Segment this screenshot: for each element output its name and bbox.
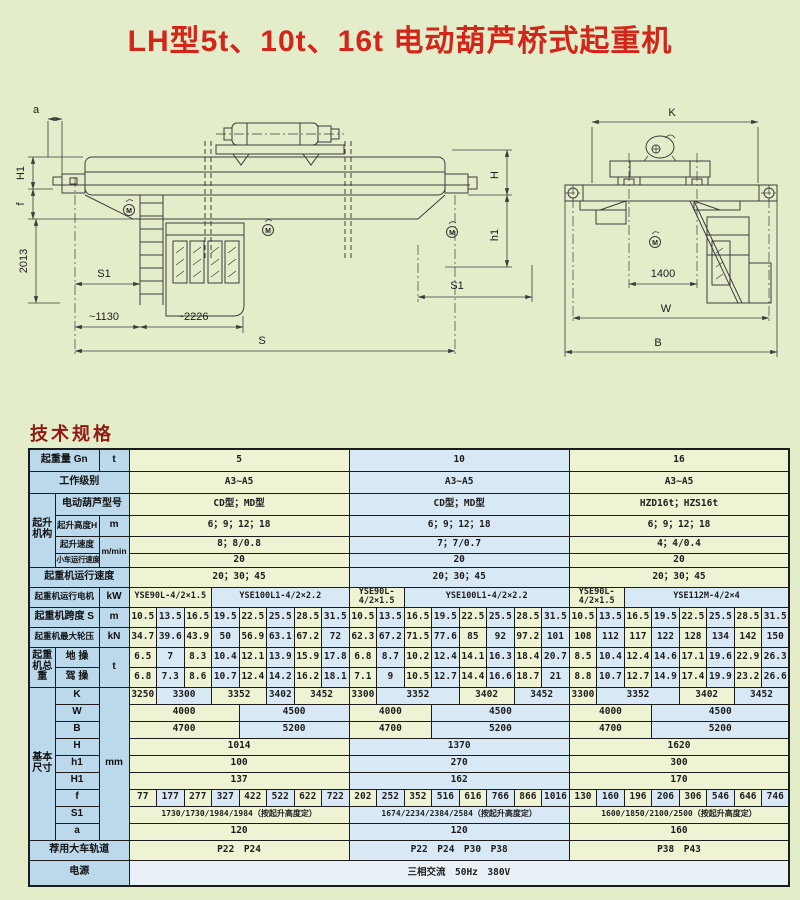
spec-value-cell: 20 bbox=[129, 553, 349, 567]
spec-value-cell: A3~A5 bbox=[129, 471, 349, 493]
spec-value-cell: 19.5 bbox=[432, 607, 460, 627]
spec-value-cell: 8.6 bbox=[184, 667, 212, 687]
page: { "page": { "title": "LH型5t、10t、16t 电动葫芦… bbox=[0, 0, 800, 900]
spec-value-cell: 6.8 bbox=[349, 647, 377, 667]
spec-value-cell: 25.5 bbox=[707, 607, 735, 627]
spec-value-cell: 142 bbox=[734, 627, 762, 647]
spec-value-cell: 12.7 bbox=[432, 667, 460, 687]
table-row: 电源三相交流 50Hz 380V bbox=[29, 860, 789, 886]
spec-value-cell: 19.6 bbox=[707, 647, 735, 667]
spec-value-cell: 23.2 bbox=[734, 667, 762, 687]
spec-value-cell: A3~A5 bbox=[349, 471, 569, 493]
spec-label-cell: 驾 操 bbox=[55, 667, 99, 687]
spec-value-cell: 4500 bbox=[432, 704, 570, 721]
side-view-drawing: M M M a H1 f 2013 bbox=[15, 104, 532, 355]
spec-value-cell: 5200 bbox=[652, 721, 790, 738]
spec-value-cell: 6；9；12；18 bbox=[129, 515, 349, 536]
dim-label-h-right: H bbox=[489, 171, 501, 179]
spec-value-cell: 10.4 bbox=[212, 647, 240, 667]
dim-label-a: a bbox=[33, 104, 40, 116]
table-row: 起升机构电动葫芦型号CD型；MD型CD型；MD型HZD16t；HZS16t bbox=[29, 493, 789, 515]
spec-value-cell: 26.3 bbox=[762, 647, 790, 667]
spec-label-cell: 起升高度H bbox=[55, 515, 99, 536]
spec-value-cell: 92 bbox=[487, 627, 515, 647]
dim-label-w: W bbox=[661, 303, 672, 315]
spec-value-cell: 8；8/0.8 bbox=[129, 536, 349, 553]
spec-value-cell: 14.4 bbox=[459, 667, 487, 687]
spec-value-cell: P22 P24 bbox=[129, 840, 349, 860]
dim-label-s1-left: S1 bbox=[97, 268, 110, 280]
spec-value-cell: 3352 bbox=[212, 687, 267, 704]
spec-value-cell: 17.8 bbox=[322, 647, 350, 667]
spec-value-cell: 134 bbox=[707, 627, 735, 647]
spec-value-cell: 128 bbox=[679, 627, 707, 647]
section-break-lines bbox=[205, 141, 351, 260]
spec-value-cell: 18.4 bbox=[514, 647, 542, 667]
spec-label-cell: 起重机总重 bbox=[29, 647, 55, 687]
spec-value-cell: 3452 bbox=[514, 687, 569, 704]
spec-label-cell: 地 操 bbox=[55, 647, 99, 667]
spec-value-cell: 3402 bbox=[679, 687, 734, 704]
spec-value-cell: 12.7 bbox=[624, 667, 652, 687]
spec-value-cell: 14.9 bbox=[652, 667, 680, 687]
spec-value-cell: 1600/1850/2100/2500（按起升高度定） bbox=[569, 806, 789, 823]
dim-label-1400: 1400 bbox=[651, 268, 675, 280]
spec-value-cell: 6.5 bbox=[129, 647, 157, 667]
spec-value-cell: 22.9 bbox=[734, 647, 762, 667]
window-hatching bbox=[176, 247, 236, 277]
spec-value-cell: P22 P24 P30 P38 bbox=[349, 840, 569, 860]
spec-label-cell: mm bbox=[99, 687, 129, 840]
spec-value-cell: 25.5 bbox=[487, 607, 515, 627]
spec-value-cell: 206 bbox=[652, 789, 680, 806]
spec-value-cell: 22.5 bbox=[239, 607, 267, 627]
spec-label-cell: 工作级别 bbox=[29, 471, 129, 493]
spec-value-cell: 20 bbox=[569, 553, 789, 567]
table-row: 小车运行速度202020 bbox=[29, 553, 789, 567]
spec-value-cell: 7.1 bbox=[349, 667, 377, 687]
spec-value-cell: 122 bbox=[652, 627, 680, 647]
spec-value-cell: CD型；MD型 bbox=[349, 493, 569, 515]
spec-value-cell: 722 bbox=[322, 789, 350, 806]
spec-value-cell: 306 bbox=[679, 789, 707, 806]
end-view-dimensions: K 1400 W B bbox=[565, 107, 777, 357]
spec-value-cell: 14.1 bbox=[459, 647, 487, 667]
spec-value-cell: 20；30；45 bbox=[569, 567, 789, 587]
spec-label-cell: 起重机跨度 S bbox=[29, 607, 99, 627]
spec-value-cell: 3300 bbox=[157, 687, 212, 704]
spec-value-cell: 4700 bbox=[349, 721, 432, 738]
spec-value-cell: 20 bbox=[349, 553, 569, 567]
spec-value-cell: A3~A5 bbox=[569, 471, 789, 493]
motor-symbol-icon: M bbox=[650, 232, 661, 248]
spec-value-cell: YSE100L1-4/2×2.2 bbox=[404, 587, 569, 607]
spec-value-cell: 117 bbox=[624, 627, 652, 647]
table-row: 起重机跨度 Sm10.513.516.519.522.525.528.531.5… bbox=[29, 607, 789, 627]
spec-value-cell: 10.7 bbox=[212, 667, 240, 687]
spec-value-cell: 34.7 bbox=[129, 627, 157, 647]
table-row: S11730/1730/1984/1984（按起升高度定）1674/2234/2… bbox=[29, 806, 789, 823]
table-row: 起重机运行速度20；30；4520；30；4520；30；45 bbox=[29, 567, 789, 587]
spec-value-cell: YSE112M-4/2×4 bbox=[624, 587, 789, 607]
spec-value-cell: 4700 bbox=[129, 721, 239, 738]
spec-value-cell: 8.3 bbox=[184, 647, 212, 667]
spec-value-cell: YSE90L-4/2×1.5 bbox=[129, 587, 212, 607]
spec-value-cell: 3250 bbox=[129, 687, 157, 704]
spec-value-cell: P38 P43 bbox=[569, 840, 789, 860]
spec-value-cell: 18.1 bbox=[322, 667, 350, 687]
table-row: f771772773274225226227222022523525166167… bbox=[29, 789, 789, 806]
spec-value-cell: 10.7 bbox=[597, 667, 625, 687]
table-row: 起重机运行电机kWYSE90L-4/2×1.5YSE100L1-4/2×2.2Y… bbox=[29, 587, 789, 607]
dim-label-2226: ~2226 bbox=[178, 311, 209, 323]
spec-value-cell: 4000 bbox=[349, 704, 432, 721]
dim-label-f: f bbox=[15, 202, 27, 206]
spec-value-cell: 10.5 bbox=[404, 667, 432, 687]
dim-label-s1-right: S1 bbox=[450, 280, 463, 292]
spec-value-cell: 14.6 bbox=[652, 647, 680, 667]
spec-value-cell: YSE100L1-4/2×2.2 bbox=[212, 587, 350, 607]
spec-value-cell: YSE90L-4/2×1.5 bbox=[569, 587, 624, 607]
spec-value-cell: 31.5 bbox=[322, 607, 350, 627]
spec-label-cell: f bbox=[55, 789, 99, 806]
operator-cab bbox=[166, 223, 244, 316]
spec-value-cell: 4000 bbox=[569, 704, 652, 721]
spec-table: 起重量 Gnt51016工作级别A3~A5A3~A5A3~A5起升机构电动葫芦型… bbox=[28, 448, 790, 887]
spec-value-cell: 12.1 bbox=[239, 647, 267, 667]
spec-value-cell: 4000 bbox=[129, 704, 239, 721]
spec-value-cell: 85 bbox=[459, 627, 487, 647]
table-row: 起升高度Hm6；9；12；186；9；12；186；9；12；18 bbox=[29, 515, 789, 536]
spec-value-cell: 162 bbox=[349, 772, 569, 789]
spec-value-cell: 16.3 bbox=[487, 647, 515, 667]
spec-value-cell: 1674/2234/2384/2584（按起升高度定） bbox=[349, 806, 569, 823]
spec-value-cell: 4500 bbox=[239, 704, 349, 721]
spec-value-cell: 202 bbox=[349, 789, 377, 806]
spec-value-cell: 19.9 bbox=[707, 667, 735, 687]
table-row: 起重机最大轮压kN34.739.643.95056.963.167.27262.… bbox=[29, 627, 789, 647]
spec-label-cell: 电源 bbox=[29, 860, 129, 886]
spec-value-cell: 13.5 bbox=[157, 607, 185, 627]
spec-value-cell: 21 bbox=[542, 667, 570, 687]
spec-value-cell: 270 bbox=[349, 755, 569, 772]
spec-value-cell: 17.1 bbox=[679, 647, 707, 667]
spec-value-cell: 6.8 bbox=[129, 667, 157, 687]
spec-value-cell: 10.2 bbox=[404, 647, 432, 667]
spec-label-cell: kW bbox=[99, 587, 129, 607]
spec-value-cell: 三相交流 50Hz 380V bbox=[129, 860, 789, 886]
spec-value-cell: 7；7/0.7 bbox=[349, 536, 569, 553]
spec-value-cell: 16.2 bbox=[294, 667, 322, 687]
spec-label-cell: 基本尺寸 bbox=[29, 687, 55, 840]
spec-value-cell: 26.6 bbox=[762, 667, 790, 687]
spec-value-cell: 19.5 bbox=[652, 607, 680, 627]
spec-value-cell: 56.9 bbox=[239, 627, 267, 647]
spec-value-cell: 277 bbox=[184, 789, 212, 806]
spec-value-cell: 97.2 bbox=[514, 627, 542, 647]
spec-value-cell: 13.5 bbox=[377, 607, 405, 627]
end-view-hoist-body bbox=[690, 201, 771, 303]
spec-value-cell: 3402 bbox=[459, 687, 514, 704]
spec-value-cell: 31.5 bbox=[762, 607, 790, 627]
spec-value-cell: 18.7 bbox=[514, 667, 542, 687]
spec-value-cell: 31.5 bbox=[542, 607, 570, 627]
spec-value-cell: 108 bbox=[569, 627, 597, 647]
spec-value-cell: 77.6 bbox=[432, 627, 460, 647]
dim-label-h1-left: H1 bbox=[15, 166, 27, 180]
spec-value-cell: 120 bbox=[129, 823, 349, 840]
spec-value-cell: 1620 bbox=[569, 738, 789, 755]
dim-label-s: S bbox=[258, 335, 265, 347]
spec-value-cell: 63.1 bbox=[267, 627, 295, 647]
spec-value-cell: 12.4 bbox=[624, 647, 652, 667]
spec-value-cell: 13.9 bbox=[267, 647, 295, 667]
spec-value-cell: 130 bbox=[569, 789, 597, 806]
table-row: h1100270300 bbox=[29, 755, 789, 772]
spec-value-cell: 8.5 bbox=[569, 647, 597, 667]
spec-value-cell: 9 bbox=[377, 667, 405, 687]
page-title: LH型5t、10t、16t 电动葫芦桥式起重机 bbox=[0, 16, 800, 60]
spec-value-cell: YSE90L-4/2×1.5 bbox=[349, 587, 404, 607]
spec-value-cell: 19.5 bbox=[212, 607, 240, 627]
spec-value-cell: 16.6 bbox=[487, 667, 515, 687]
spec-value-cell: 616 bbox=[459, 789, 487, 806]
spec-value-cell: 866 bbox=[514, 789, 542, 806]
spec-label-cell: 起重机运行电机 bbox=[29, 587, 99, 607]
spec-value-cell: 177 bbox=[157, 789, 185, 806]
spec-value-cell: 3352 bbox=[377, 687, 460, 704]
spec-value-cell: 4500 bbox=[652, 704, 790, 721]
spec-label-cell: H bbox=[55, 738, 99, 755]
dim-label-2013: 2013 bbox=[18, 249, 30, 273]
svg-text:M: M bbox=[449, 230, 455, 237]
table-row: 起重量 Gnt51016 bbox=[29, 449, 789, 471]
spec-value-cell: 12.4 bbox=[432, 647, 460, 667]
spec-label-cell: m/min bbox=[99, 536, 129, 567]
spec-value-cell: 1370 bbox=[349, 738, 569, 755]
spec-value-cell: 150 bbox=[762, 627, 790, 647]
spec-value-cell: 10.4 bbox=[597, 647, 625, 667]
spec-value-cell: 5200 bbox=[432, 721, 570, 738]
spec-label-cell: 起重机最大轮压 bbox=[29, 627, 99, 647]
spec-value-cell: 5 bbox=[129, 449, 349, 471]
svg-text:M: M bbox=[126, 208, 132, 215]
motor-symbol-icon: M bbox=[124, 200, 135, 216]
spec-value-cell: 3300 bbox=[569, 687, 597, 704]
spec-value-cell: 112 bbox=[597, 627, 625, 647]
spec-value-cell: 28.5 bbox=[514, 607, 542, 627]
spec-value-cell: 120 bbox=[349, 823, 569, 840]
spec-value-cell: 28.5 bbox=[294, 607, 322, 627]
spec-value-cell: 137 bbox=[129, 772, 349, 789]
spec-label-cell: 电动葫芦型号 bbox=[55, 493, 129, 515]
spec-label-cell: 起升机构 bbox=[29, 493, 55, 567]
spec-value-cell: 17.4 bbox=[679, 667, 707, 687]
spec-label-cell: 小车运行速度 bbox=[55, 553, 99, 567]
spec-value-cell: 16.5 bbox=[624, 607, 652, 627]
table-row: a120120160 bbox=[29, 823, 789, 840]
spec-table-body: 起重量 Gnt51016工作级别A3~A5A3~A5A3~A5起升机构电动葫芦型… bbox=[29, 449, 789, 886]
spec-value-cell: 22.5 bbox=[679, 607, 707, 627]
spec-value-cell: 352 bbox=[404, 789, 432, 806]
spec-label-cell: B bbox=[55, 721, 99, 738]
spec-label-cell: 荐用大车轨道 bbox=[29, 840, 129, 860]
spec-value-cell: 20；30；45 bbox=[129, 567, 349, 587]
spec-value-cell: 10 bbox=[349, 449, 569, 471]
spec-value-cell: 39.6 bbox=[157, 627, 185, 647]
table-row: 驾 操6.87.38.610.712.414.216.218.17.1910.5… bbox=[29, 667, 789, 687]
spec-value-cell: 72 bbox=[322, 627, 350, 647]
spec-value-cell: 6；9；12；18 bbox=[569, 515, 789, 536]
table-row: 基本尺寸Kmm325033003352340234523300335234023… bbox=[29, 687, 789, 704]
spec-value-cell: 196 bbox=[624, 789, 652, 806]
spec-label-cell: t bbox=[99, 647, 129, 687]
ladder bbox=[140, 195, 163, 305]
spec-value-cell: 1014 bbox=[129, 738, 349, 755]
spec-value-cell: 746 bbox=[762, 789, 790, 806]
spec-value-cell: 22.5 bbox=[459, 607, 487, 627]
spec-value-cell: 3300 bbox=[349, 687, 377, 704]
girder-outline bbox=[53, 141, 477, 260]
spec-label-cell: 起重机运行速度 bbox=[29, 567, 129, 587]
spec-value-cell: 4；4/0.4 bbox=[569, 536, 789, 553]
section-heading: 技术规格 bbox=[30, 420, 114, 446]
dim-label-b: B bbox=[654, 337, 661, 349]
spec-value-cell: 62.3 bbox=[349, 627, 377, 647]
spec-value-cell: 3352 bbox=[597, 687, 680, 704]
spec-value-cell: 170 bbox=[569, 772, 789, 789]
table-row: 起升速度m/min8；8/0.87；7/0.74；4/0.4 bbox=[29, 536, 789, 553]
spec-value-cell: 160 bbox=[597, 789, 625, 806]
spec-value-cell: 300 bbox=[569, 755, 789, 772]
motor-symbol-icon: M bbox=[447, 222, 458, 238]
spec-value-cell: 100 bbox=[129, 755, 349, 772]
spec-value-cell: 13.5 bbox=[597, 607, 625, 627]
spec-value-cell: 422 bbox=[239, 789, 267, 806]
spec-value-cell: HZD16t；HZS16t bbox=[569, 493, 789, 515]
spec-value-cell: 43.9 bbox=[184, 627, 212, 647]
spec-value-cell: 546 bbox=[707, 789, 735, 806]
spec-value-cell: 16 bbox=[569, 449, 789, 471]
spec-label-cell: kN bbox=[99, 627, 129, 647]
table-row: B470052004700520047005200 bbox=[29, 721, 789, 738]
spec-value-cell: 14.2 bbox=[267, 667, 295, 687]
table-row: H1137162170 bbox=[29, 772, 789, 789]
spec-value-cell: 327 bbox=[212, 789, 240, 806]
spec-value-cell: 10.5 bbox=[349, 607, 377, 627]
spec-label-cell: t bbox=[99, 449, 129, 471]
dim-label-1130: ~1130 bbox=[89, 311, 119, 323]
motor-symbol-icon: M bbox=[263, 220, 274, 236]
end-view-drawing: M K 1400 W B bbox=[565, 107, 777, 357]
spec-value-cell: 28.5 bbox=[734, 607, 762, 627]
spec-value-cell: 101 bbox=[542, 627, 570, 647]
spec-label-cell: K bbox=[55, 687, 99, 704]
table-row: 工作级别A3~A5A3~A5A3~A5 bbox=[29, 471, 789, 493]
technical-drawings: M M M a H1 f 2013 bbox=[0, 95, 800, 407]
spec-value-cell: 20；30；45 bbox=[349, 567, 569, 587]
spec-value-cell: 4700 bbox=[569, 721, 652, 738]
spec-value-cell: 71.5 bbox=[404, 627, 432, 647]
spec-value-cell: 10.5 bbox=[569, 607, 597, 627]
spec-label-cell: m bbox=[99, 515, 129, 536]
spec-value-cell: 3402 bbox=[267, 687, 295, 704]
spec-value-cell: 50 bbox=[212, 627, 240, 647]
spec-value-cell: 77 bbox=[129, 789, 157, 806]
spec-value-cell: 766 bbox=[487, 789, 515, 806]
spec-value-cell: 67.2 bbox=[294, 627, 322, 647]
spec-label-cell: a bbox=[55, 823, 99, 840]
spec-value-cell: 3452 bbox=[734, 687, 789, 704]
spec-value-cell: 15.9 bbox=[294, 647, 322, 667]
dim-label-h1-right: h1 bbox=[489, 229, 501, 241]
spec-value-cell: 1730/1730/1984/1984（按起升高度定） bbox=[129, 806, 349, 823]
table-row: 荐用大车轨道P22 P24P22 P24 P30 P38P38 P43 bbox=[29, 840, 789, 860]
table-row: H101413701620 bbox=[29, 738, 789, 755]
spec-label-cell: H1 bbox=[55, 772, 99, 789]
spec-value-cell: 8.8 bbox=[569, 667, 597, 687]
spec-value-cell: 10.5 bbox=[129, 607, 157, 627]
spec-label-cell: m bbox=[99, 607, 129, 627]
girder-cross-section bbox=[565, 185, 777, 224]
spec-value-cell: 522 bbox=[267, 789, 295, 806]
spec-value-cell: 252 bbox=[377, 789, 405, 806]
spec-label-cell: S1 bbox=[55, 806, 99, 823]
spec-label-cell: 起重量 Gn bbox=[29, 449, 99, 471]
spec-value-cell: CD型；MD型 bbox=[129, 493, 349, 515]
hoist-trolley bbox=[216, 123, 344, 165]
spec-value-cell: 16.5 bbox=[404, 607, 432, 627]
svg-text:M: M bbox=[265, 228, 271, 235]
spec-value-cell: 7.3 bbox=[157, 667, 185, 687]
spec-value-cell: 67.2 bbox=[377, 627, 405, 647]
spec-value-cell: 516 bbox=[432, 789, 460, 806]
spec-value-cell: 6；9；12；18 bbox=[349, 515, 569, 536]
spec-value-cell: 7 bbox=[157, 647, 185, 667]
spec-value-cell: 160 bbox=[569, 823, 789, 840]
dim-label-k: K bbox=[668, 107, 676, 119]
spec-value-cell: 622 bbox=[294, 789, 322, 806]
spec-label-cell: h1 bbox=[55, 755, 99, 772]
spec-value-cell: 3452 bbox=[294, 687, 349, 704]
table-row: 起重机总重地 操t6.578.310.412.113.915.917.86.88… bbox=[29, 647, 789, 667]
svg-text:M: M bbox=[652, 240, 658, 247]
spec-value-cell: 16.5 bbox=[184, 607, 212, 627]
spec-value-cell: 5200 bbox=[239, 721, 349, 738]
spec-value-cell: 25.5 bbox=[267, 607, 295, 627]
spec-label-cell: W bbox=[55, 704, 99, 721]
spec-value-cell: 1016 bbox=[542, 789, 570, 806]
spec-value-cell: 646 bbox=[734, 789, 762, 806]
table-row: W400045004000450040004500 bbox=[29, 704, 789, 721]
spec-value-cell: 8.7 bbox=[377, 647, 405, 667]
spec-label-cell: 起升速度 bbox=[55, 536, 99, 553]
spec-value-cell: 12.4 bbox=[239, 667, 267, 687]
spec-value-cell: 20.7 bbox=[542, 647, 570, 667]
